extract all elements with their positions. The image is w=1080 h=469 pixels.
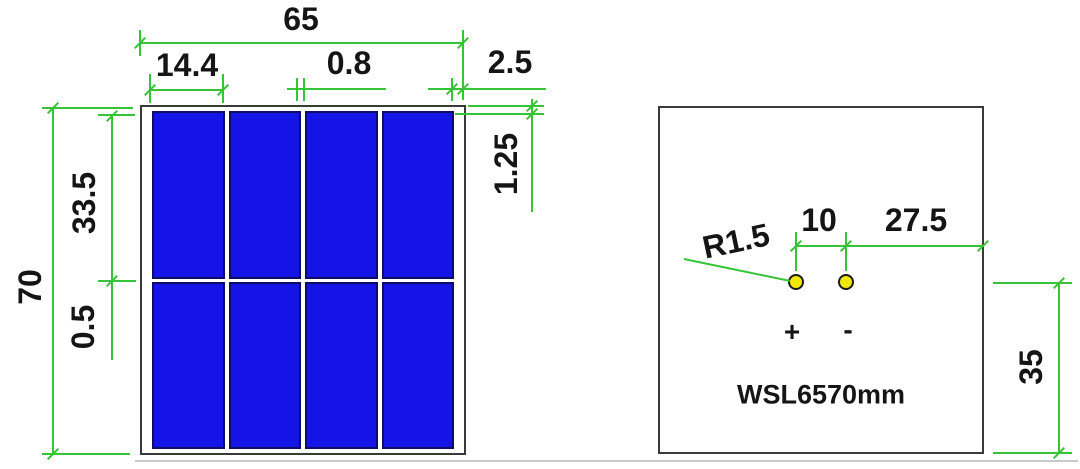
dim-overall-height-witness-bottom — [42, 453, 130, 455]
dim-hole-to-bottom-line — [1058, 282, 1060, 453]
solar-cell — [229, 111, 302, 279]
negative-terminal-label: - — [843, 316, 852, 344]
dim-cell-gap-label: 0.8 — [327, 47, 371, 79]
solar-cell — [152, 282, 225, 450]
positive-terminal-hole — [788, 274, 804, 290]
solar-cell — [305, 111, 378, 279]
dim-hole-to-bottom-label: 35 — [1015, 349, 1047, 385]
dim-cell-gap-line — [287, 88, 386, 90]
dim-edge-margin-line — [428, 88, 546, 90]
dim-overall-height-witness-top — [42, 107, 133, 109]
positive-terminal-label: + — [784, 318, 800, 346]
solar-cell — [229, 282, 302, 450]
dim-hole-pitch-witness-left — [795, 232, 797, 271]
solar-cell — [382, 111, 455, 279]
dim-top-margin-label: 1.25 — [490, 133, 522, 195]
dim-cell-height-witness-top — [98, 114, 135, 116]
dim-hole-pitch-witness-right — [845, 232, 847, 271]
baseline-rule — [135, 460, 1078, 462]
solar-cell — [382, 282, 455, 450]
dim-cell-width-line — [150, 89, 224, 91]
dim-overall-height-label: 70 — [14, 269, 46, 305]
dim-row-gap-line — [111, 281, 113, 360]
negative-terminal-hole — [838, 274, 854, 290]
dim-hole-to-edge-label: 27.5 — [885, 204, 947, 236]
dimension-drawing: 65 14.4 0.8 2.5 70 33.5 0.5 1.25 R1.5 — [0, 0, 1080, 469]
model-label: WSL6570mm — [737, 382, 905, 409]
dim-cell-gap-witness-left — [296, 78, 298, 101]
dim-cell-width-label: 14.4 — [156, 49, 218, 81]
solar-cells — [152, 111, 454, 449]
dim-overall-height-line — [52, 107, 54, 454]
front-view-panel-frame — [140, 105, 466, 455]
solar-cell — [305, 282, 378, 450]
dim-overall-width-line — [140, 42, 464, 44]
dim-hole-pitch-label: 10 — [801, 204, 837, 236]
dim-cell-height-line — [111, 115, 113, 281]
dim-overall-width-label: 65 — [283, 3, 319, 35]
dim-row-gap-label: 0.5 — [67, 305, 99, 349]
dim-hole-position-line — [796, 245, 984, 247]
solar-cell — [152, 111, 225, 279]
dim-cell-height-label: 33.5 — [68, 172, 100, 234]
dim-row-gap-witness — [98, 280, 136, 282]
dim-edge-margin-label: 2.5 — [488, 46, 532, 78]
dim-cell-gap-witness-right — [303, 78, 305, 101]
